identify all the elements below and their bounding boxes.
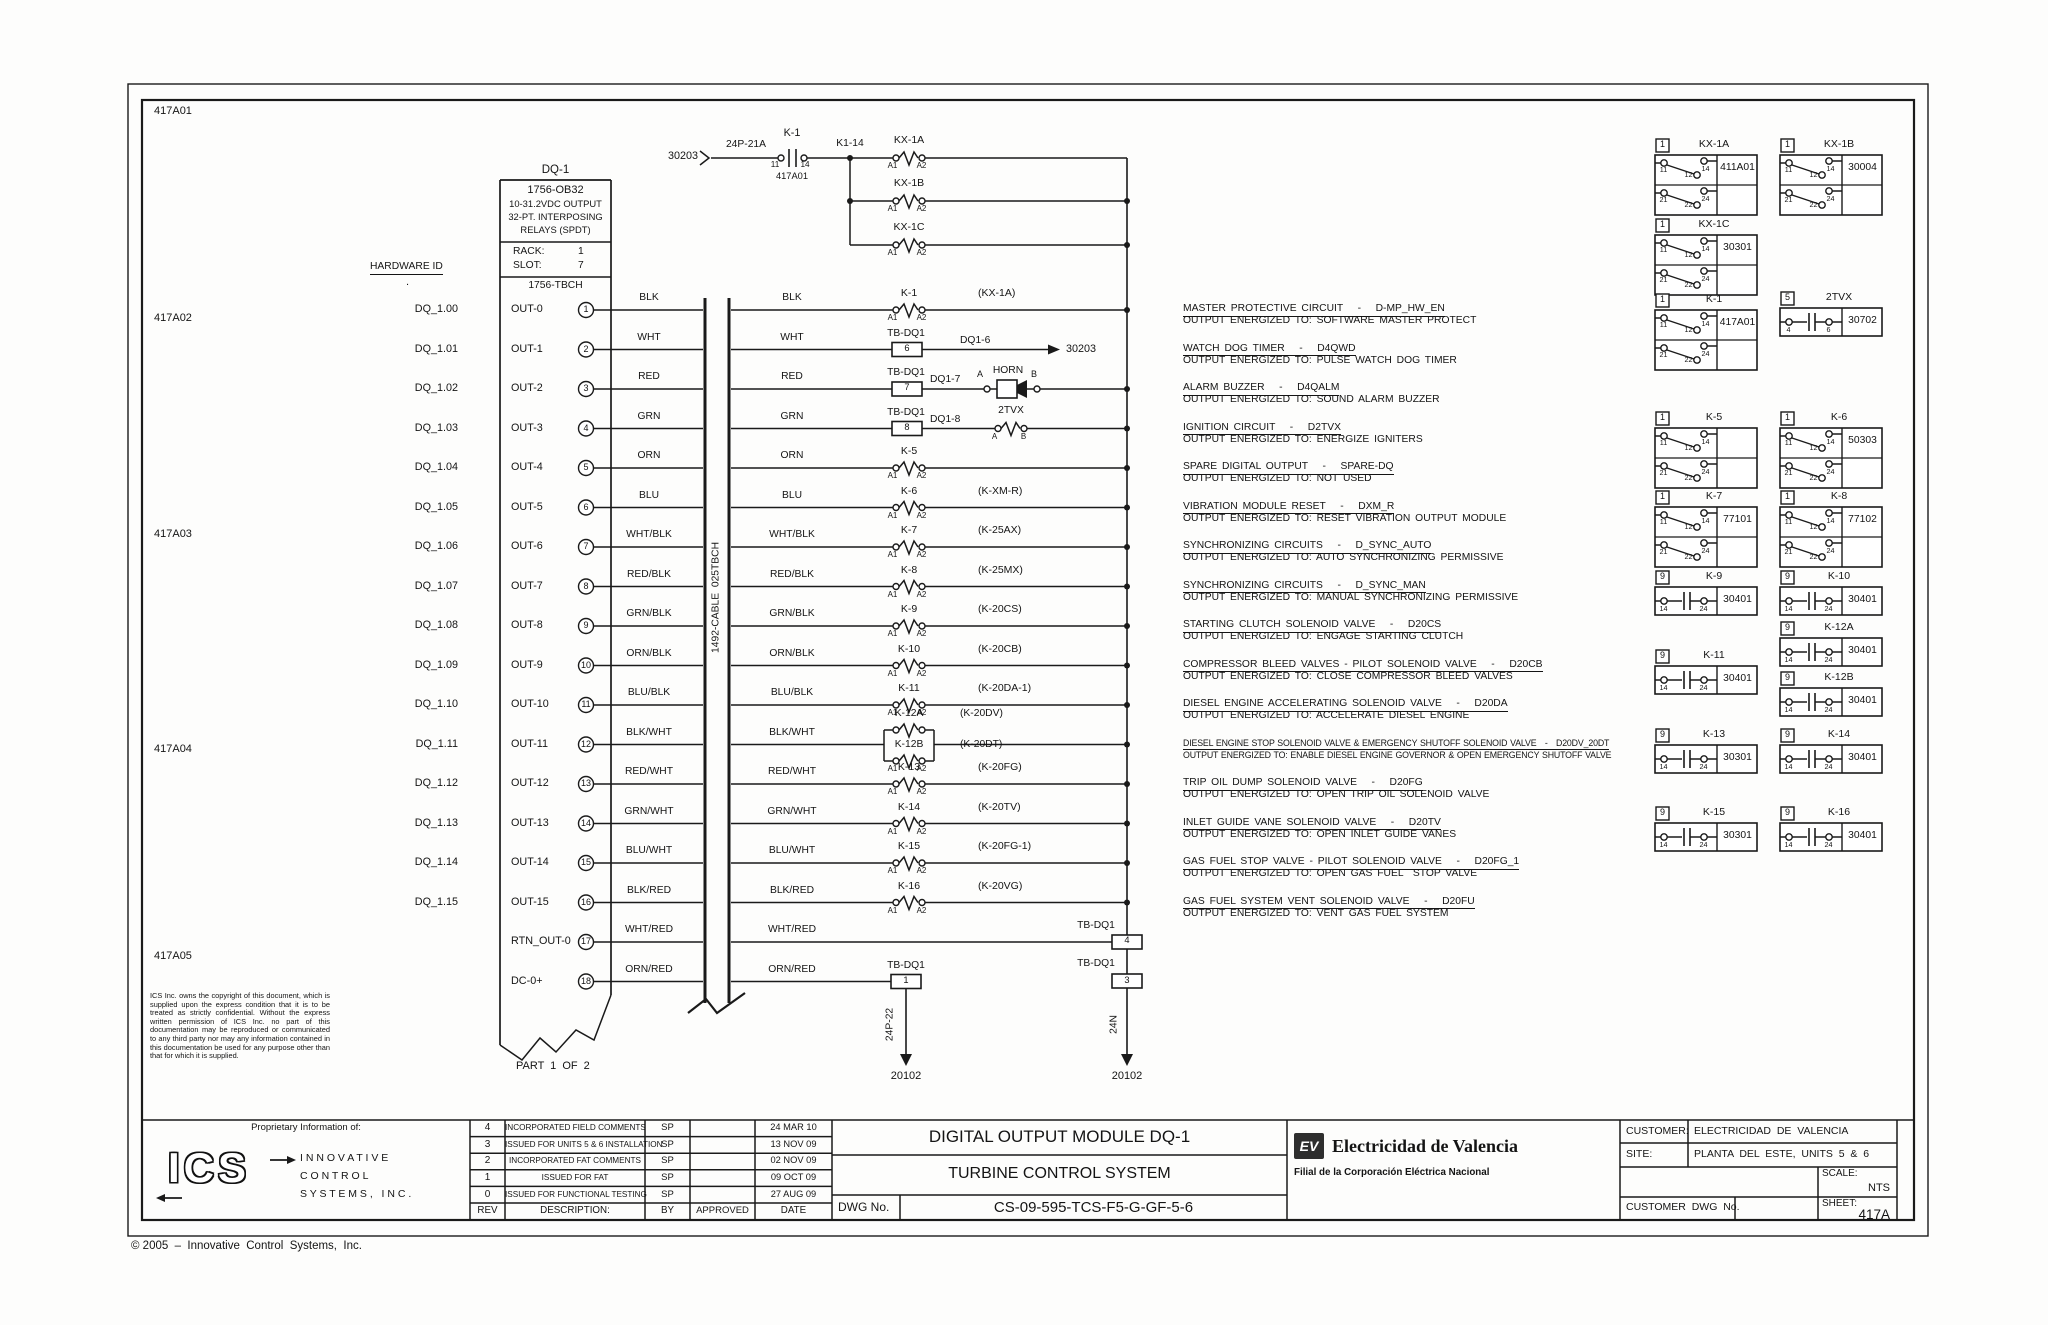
wire-color-label: ORN/BLK — [596, 649, 702, 660]
feed-contact-pin: 14 — [796, 161, 814, 170]
rev-description: INCORPORATED FIELD COMMENTS — [505, 1124, 645, 1133]
rev-number: 0 — [470, 1190, 505, 1201]
relay-block-name: K-10 — [1796, 571, 1882, 582]
relay-block-name: K-1 — [1671, 294, 1757, 305]
wire-color-label: ORN/BLK — [733, 649, 851, 660]
contact-pin: 14 — [1656, 684, 1671, 692]
relay-coil-name: K-7 — [874, 525, 944, 536]
contact-pin: 24 — [1821, 841, 1836, 849]
contact-pin: 12 — [1681, 444, 1696, 452]
coil-pin: A1 — [884, 670, 901, 678]
relay-block-ref: 30401 — [1843, 595, 1882, 606]
wire-color-label: ORN/RED — [733, 965, 851, 976]
relay-coil-name: K-12B — [874, 740, 944, 751]
zone-label: 417A05 — [154, 951, 192, 963]
coil-pin: A2 — [913, 249, 930, 257]
rack-label: RACK: — [513, 247, 544, 258]
contact-pin: 14 — [1698, 245, 1713, 253]
relay-block-ref: 30004 — [1843, 163, 1882, 174]
relay-coil-alias: (K-XM-R) — [978, 486, 1022, 497]
description-detail: OUTPUT ENERGIZED TO: RESET VIBRATION OUT… — [1183, 514, 1506, 525]
relay-block-ref: 30702 — [1843, 316, 1882, 327]
ev-company-name: Electricidad de Valencia — [1332, 1137, 1518, 1156]
contact-pin: 11 — [1656, 321, 1671, 329]
coil-pin: A2 — [913, 162, 930, 170]
relay-coil-alias: (K-20CB) — [978, 644, 1022, 655]
wire-color-label: GRN/WHT — [596, 807, 702, 818]
coil-pin: A1 — [884, 828, 901, 836]
module-out-label: RTN_OUT-0 — [511, 936, 571, 947]
relay-block-name: K-6 — [1796, 412, 1882, 423]
sheet-value: 417A — [1818, 1208, 1890, 1222]
module-model: 1756-OB32 — [500, 185, 611, 197]
rev-by: SP — [645, 1173, 690, 1183]
contact-pin: 24 — [1823, 547, 1838, 555]
tb-label: TB-DQ1 — [866, 961, 946, 972]
module-spec: 10-31.2VDC OUTPUT — [500, 199, 611, 209]
wire-color-label: BLU/WHT — [596, 846, 702, 857]
module-out-label: OUT-8 — [511, 620, 543, 631]
feed-contact-name: K-1 — [763, 128, 821, 139]
module-terminal-number: 18 — [578, 977, 594, 987]
module-terminal-number: 10 — [578, 661, 594, 671]
module-out-label: OUT-14 — [511, 857, 549, 868]
wire-color-label: BLU/BLK — [733, 688, 851, 699]
module-terminal-number: 11 — [578, 700, 594, 710]
rev-description: ISSUED FOR FUNCTIONAL TESTING — [505, 1191, 645, 1200]
hardware-id: DQ_1.01 — [370, 344, 458, 355]
wire-color-label: GRN — [596, 412, 702, 423]
feed-junction-label: K1-14 — [822, 139, 878, 150]
wire-tag: DQ1-6 — [960, 336, 990, 347]
contact-pin: 12 — [1681, 251, 1696, 259]
relay-block-badge: 9 — [1781, 623, 1794, 633]
coil-pin: A1 — [884, 472, 901, 480]
description-detail: OUTPUT ENERGIZED TO: OPEN INLET GUIDE VA… — [1183, 830, 1456, 841]
company-name-line: S Y S T E M S , I N C . — [300, 1189, 411, 1200]
relay-coil-name: K-16 — [874, 881, 944, 892]
contact-pin: 11 — [1656, 518, 1671, 526]
rev-date: 13 NOV 09 — [755, 1140, 832, 1150]
tb-terminal-number: 6 — [892, 344, 922, 354]
hardware-id: DQ_1.05 — [370, 502, 458, 513]
customer-value: ELECTRICIDAD DE VALENCIA — [1694, 1126, 1848, 1137]
coil-pin: A2 — [913, 472, 930, 480]
rev-date: 02 NOV 09 — [755, 1156, 832, 1166]
contact-pin: 24 — [1821, 763, 1836, 771]
relay-block-name: KX-1C — [1671, 219, 1757, 230]
hardware-id: DQ_1.12 — [370, 778, 458, 789]
contact-pin: 22 — [1681, 553, 1696, 561]
wire-color-label: RED — [733, 372, 851, 383]
copyright: © 2005 – Innovative Control Systems, Inc… — [131, 1240, 362, 1252]
wire-destination: 30203 — [1066, 344, 1096, 355]
module-terminal-number: 7 — [578, 542, 594, 552]
relay-coil-name: K-12A — [874, 709, 944, 720]
relay-block-name: K-11 — [1671, 650, 1757, 661]
company-name-line: C O N T R O L — [300, 1171, 368, 1182]
dwg-no-label: DWG No. — [838, 1201, 889, 1214]
drop-destination: 20102 — [874, 1071, 938, 1083]
contact-pin: 12 — [1806, 444, 1821, 452]
module-terminal-number: 1 — [578, 305, 594, 315]
description-detail: OUTPUT ENERGIZED TO: AUTO SYNCHRONIZING … — [1183, 553, 1503, 564]
relay-block-ref: 30401 — [1718, 674, 1757, 685]
tb-terminal-number: 4 — [1112, 936, 1142, 946]
contact-pin: 22 — [1681, 201, 1696, 209]
relay-coil-name: K-9 — [874, 604, 944, 615]
wire-color-label: ORN — [596, 451, 702, 462]
relay-coil-alias: (K-20VG) — [978, 881, 1022, 892]
relay-coil-alias: (K-20FG) — [978, 762, 1022, 773]
rev-number: 2 — [470, 1156, 505, 1167]
proprietary-heading: Proprietary Information of: — [142, 1123, 470, 1133]
rev-by: SP — [645, 1156, 690, 1166]
wire-color-label: BLK — [596, 293, 702, 304]
rev-header-date: DATE — [755, 1206, 832, 1216]
contact-pin: 22 — [1681, 474, 1696, 482]
dwg-no-value: CS-09-595-TCS-F5-G-GF-5-6 — [900, 1200, 1287, 1216]
hardware-id: DQ_1.02 — [370, 383, 458, 394]
relay-block-ref: 30401 — [1718, 595, 1757, 606]
coil-pin: A2 — [913, 314, 930, 322]
customer-label: CUSTOMER: — [1626, 1126, 1689, 1137]
coil-pin: A2 — [913, 670, 930, 678]
coil-pin: A1 — [884, 249, 901, 257]
contact-pin: 24 — [1698, 195, 1713, 203]
relay-block-ref: 30401 — [1843, 696, 1882, 707]
relay-block-name: KX-1B — [1796, 139, 1882, 150]
contact-pin: 24 — [1823, 468, 1838, 476]
contact-pin: 14 — [1823, 517, 1838, 525]
relay-block-badge: 9 — [1656, 572, 1669, 582]
zone-label: 417A01 — [154, 106, 192, 118]
coil-pin: A2 — [913, 828, 930, 836]
relay-block-badge: 9 — [1656, 730, 1669, 740]
contact-pin: 11 — [1656, 439, 1671, 447]
relay-block-badge: 1 — [1781, 413, 1794, 423]
module-terminal-number: 2 — [578, 345, 594, 355]
wire-color-label: WHT — [733, 333, 851, 344]
coil-pin: A2 — [913, 551, 930, 559]
hardware-id-dot: . — [406, 277, 409, 289]
module-out-label: OUT-5 — [511, 502, 543, 513]
relay-block-name: K-14 — [1796, 729, 1882, 740]
wire-color-label: WHT/RED — [596, 925, 702, 936]
description-detail: OUTPUT ENERGIZED TO: ACCELERATE DIESEL E… — [1183, 711, 1469, 722]
wire-color-label: RED/BLK — [733, 570, 851, 581]
wire-color-label: GRN — [733, 412, 851, 423]
relay-block-name: K-7 — [1671, 491, 1757, 502]
feed-contact-pin: 11 — [766, 161, 784, 170]
coil-pin: A1 — [884, 630, 901, 638]
relay-coil-alias: (K-20FG-1) — [978, 841, 1031, 852]
contact-pin: 11 — [1781, 439, 1796, 447]
coil-pin: A2 — [913, 630, 930, 638]
wire-tag: DQ1-7 — [930, 375, 960, 386]
contact-pin: 24 — [1698, 350, 1713, 358]
contact-pin: 14 — [1781, 605, 1796, 613]
contact-pin: 21 — [1781, 196, 1796, 204]
wire-color-label: BLU/BLK — [596, 688, 702, 699]
relay-block-badge: 1 — [1781, 140, 1794, 150]
coil-pin: A2 — [913, 591, 930, 599]
coil-pin: A1 — [884, 788, 901, 796]
hardware-id: DQ_1.14 — [370, 857, 458, 868]
contact-pin: 24 — [1696, 841, 1711, 849]
module-terminal-number: 9 — [578, 621, 594, 631]
contact-pin: 12 — [1681, 523, 1696, 531]
hardware-id: DQ_1.00 — [370, 304, 458, 315]
drop-wire-tag: 24N — [1110, 1001, 1121, 1047]
hardware-id: DQ_1.04 — [370, 462, 458, 473]
module-out-label: OUT-15 — [511, 897, 549, 908]
drop-wire-tag: 24P-22 — [886, 992, 897, 1056]
contact-pin: 14 — [1698, 517, 1713, 525]
feed-sheet-ref: 417A01 — [763, 172, 821, 182]
hardware-id: DQ_1.07 — [370, 581, 458, 592]
relay-coil-alias: (KX-1A) — [978, 288, 1015, 299]
module-terminal-number: 6 — [578, 503, 594, 513]
relay-coil-name: K-10 — [874, 644, 944, 655]
module-out-label: OUT-11 — [511, 739, 548, 750]
contact-pin: 22 — [1806, 201, 1821, 209]
contact-pin: 24 — [1821, 605, 1836, 613]
module-out-label: OUT-13 — [511, 818, 549, 829]
hardware-id: DQ_1.10 — [370, 699, 458, 710]
relay-block-badge: 5 — [1781, 293, 1794, 303]
customer-dwg-label: CUSTOMER DWG No. — [1626, 1202, 1740, 1213]
wire-color-label: ORN/RED — [596, 965, 702, 976]
contact-pin: 21 — [1656, 196, 1671, 204]
ics-logo: ICS — [168, 1146, 250, 1191]
contact-pin: 22 — [1806, 474, 1821, 482]
contact-pin: 12 — [1681, 171, 1696, 179]
module-terminal-number: 12 — [578, 740, 594, 750]
description-detail: OUTPUT ENERGIZED TO: SOFTWARE MASTER PRO… — [1183, 316, 1476, 327]
relay-coil-name: K-5 — [874, 446, 944, 457]
ev-logo: EV — [1294, 1133, 1324, 1159]
module-out-label: DC-0+ — [511, 976, 543, 987]
wire-color-label: BLU — [596, 491, 702, 502]
relay-block-badge: 1 — [1656, 413, 1669, 423]
hardware-id: DQ_1.08 — [370, 620, 458, 631]
tb-terminal-number: 8 — [892, 423, 922, 433]
coil-pin: A2 — [913, 205, 930, 213]
relay-coil-name: 2TVX — [976, 406, 1046, 417]
relay-block-name: K-5 — [1671, 412, 1757, 423]
coil-pin: A1 — [884, 512, 901, 520]
site-label: SITE: — [1626, 1149, 1652, 1160]
ev-company-sub: Filial de la Corporación Eléctrica Nacio… — [1294, 1168, 1489, 1178]
rev-number: 3 — [470, 1140, 505, 1151]
wire-color-label: WHT/BLK — [596, 530, 702, 541]
description-detail: OUTPUT ENERGIZED TO: ENGAGE STARTING CLU… — [1183, 632, 1463, 643]
relay-block-badge: 9 — [1781, 808, 1794, 818]
relay-block-ref: 30401 — [1843, 831, 1882, 842]
contact-pin: 22 — [1681, 281, 1696, 289]
module-terminal-number: 4 — [578, 424, 594, 434]
contact-pin: 14 — [1656, 605, 1671, 613]
description-title: DIESEL ENGINE STOP SOLENOID VALVE & EMER… — [1183, 739, 1609, 750]
rev-number: 4 — [470, 1123, 505, 1134]
contact-pin: 21 — [1656, 548, 1671, 556]
module-terminal-number: 17 — [578, 937, 594, 947]
contact-pin: 11 — [1781, 518, 1796, 526]
description-detail: OUTPUT ENERGIZED TO: ENERGIZE IGNITERS — [1183, 435, 1423, 446]
feed-source-tag: 30203 — [640, 151, 698, 162]
relay-block-ref: 30301 — [1718, 753, 1757, 764]
coil-pin: A2 — [913, 867, 930, 875]
contact-pin: 6 — [1821, 326, 1836, 334]
relay-block-ref: 30401 — [1843, 753, 1882, 764]
relay-block-badge: 9 — [1656, 651, 1669, 661]
coil-pin: A1 — [884, 907, 901, 915]
contact-pin: 24 — [1698, 547, 1713, 555]
relay-coil-name: K-15 — [874, 841, 944, 852]
contact-pin: 24 — [1696, 763, 1711, 771]
contact-pin: 14 — [1781, 763, 1796, 771]
description-detail: OUTPUT ENERGIZED TO: CLOSE COMPRESSOR BL… — [1183, 672, 1513, 683]
relay-coil-name: K-11 — [874, 683, 944, 694]
module-terminal-number: 13 — [578, 779, 594, 789]
contact-pin: 14 — [1698, 320, 1713, 328]
relay-coil-alias: (K-20TV) — [978, 802, 1021, 813]
rev-header-by: BY — [645, 1206, 690, 1216]
hardware-id: DQ_1.13 — [370, 818, 458, 829]
wire-color-label: GRN/BLK — [596, 609, 702, 620]
contact-pin: 14 — [1698, 438, 1713, 446]
module-spec: RELAYS (SPDT) — [500, 225, 611, 235]
coil-pin: B — [1015, 433, 1032, 441]
wire-color-label: RED — [596, 372, 702, 383]
module-name: DQ-1 — [500, 164, 611, 176]
rev-by: SP — [645, 1190, 690, 1200]
relay-block-badge: 1 — [1656, 140, 1669, 150]
zone-label: 417A04 — [154, 744, 192, 756]
hardware-id-header: HARDWARE ID — [370, 262, 443, 275]
hardware-id: DQ_1.09 — [370, 660, 458, 671]
feed-wire-label: 24P-21A — [702, 140, 790, 151]
horn-pin: B — [1026, 370, 1042, 380]
relay-block-ref: 417A01 — [1718, 318, 1757, 329]
description-detail: OUTPUT ENERGIZED TO: OPEN GAS FUEL STOP … — [1183, 869, 1477, 880]
relay-block-badge: 1 — [1656, 220, 1669, 230]
module-out-label: OUT-1 — [511, 344, 543, 355]
wire-color-label: WHT/BLK — [733, 530, 851, 541]
contact-pin: 24 — [1696, 605, 1711, 613]
contact-pin: 14 — [1656, 763, 1671, 771]
description-detail: OUTPUT ENERGIZED TO: ENABLE DIESEL ENGIN… — [1183, 751, 1611, 760]
contact-pin: 14 — [1823, 438, 1838, 446]
module-out-label: OUT-12 — [511, 778, 549, 789]
terminal-base-label: 1756-TBCH — [500, 281, 611, 292]
contact-pin: 21 — [1781, 548, 1796, 556]
relay-block-name: K-9 — [1671, 571, 1757, 582]
description-detail: OUTPUT ENERGIZED TO: PULSE WATCH DOG TIM… — [1183, 356, 1457, 367]
wire-color-label: GRN/BLK — [733, 609, 851, 620]
contact-pin: 14 — [1823, 165, 1838, 173]
zone-label: 417A03 — [154, 529, 192, 541]
coil-pin: A2 — [913, 907, 930, 915]
relay-block-badge: 9 — [1656, 808, 1669, 818]
relay-coil-alias: (K-25MX) — [978, 565, 1023, 576]
relay-coil-alias: (K-25AX) — [978, 525, 1021, 536]
relay-block-badge: 1 — [1656, 295, 1669, 305]
relay-block-ref: 411A01 — [1718, 163, 1757, 174]
contact-pin: 11 — [1656, 166, 1671, 174]
tb-terminal-number: 1 — [891, 976, 921, 986]
relay-coil-name: K-1 — [874, 288, 944, 299]
relay-block-badge: 9 — [1781, 730, 1794, 740]
tb-terminal-number: 7 — [892, 383, 922, 393]
rev-number: 1 — [470, 1173, 505, 1184]
wire-color-label: BLK/RED — [596, 886, 702, 897]
relay-block-ref: 77102 — [1843, 515, 1882, 526]
rev-description: ISSUED FOR FAT — [505, 1174, 645, 1183]
relay-block-name: K-16 — [1796, 807, 1882, 818]
contact-pin: 24 — [1823, 195, 1838, 203]
rev-date: 27 AUG 09 — [755, 1190, 832, 1200]
drawing-subtitle: TURBINE CONTROL SYSTEM — [832, 1166, 1287, 1183]
description-detail: OUTPUT ENERGIZED TO: SOUND ALARM BUZZER — [1183, 395, 1440, 406]
wire-color-label: BLK/RED — [733, 886, 851, 897]
relay-coil-name: K-13 — [874, 762, 944, 773]
relay-block-name: K-15 — [1671, 807, 1757, 818]
description-detail: OUTPUT ENERGIZED TO: VENT GAS FUEL SYSTE… — [1183, 909, 1448, 920]
rev-header-approved: APPROVED — [690, 1206, 755, 1216]
slot-value: 7 — [578, 261, 584, 272]
hardware-id: DQ_1.11 — [370, 739, 458, 750]
coil-pin: A1 — [884, 591, 901, 599]
wire-color-label: BLU — [733, 491, 851, 502]
rev-date: 24 MAR 10 — [755, 1123, 832, 1133]
drawing-title: DIGITAL OUTPUT MODULE DQ-1 — [832, 1128, 1287, 1146]
coil-pin: A1 — [884, 205, 901, 213]
relay-coil-name: KX-1A — [874, 135, 944, 146]
coil-pin: A1 — [884, 867, 901, 875]
wire-color-label: BLK — [733, 293, 851, 304]
contact-pin: 21 — [1656, 276, 1671, 284]
relay-block-badge: 9 — [1781, 673, 1794, 683]
module-out-label: OUT-6 — [511, 541, 543, 552]
coil-pin: A1 — [884, 314, 901, 322]
tb-label: TB-DQ1 — [866, 329, 946, 340]
tb-label: TB-DQ1 — [1056, 921, 1136, 932]
relay-coil-name: K-8 — [874, 565, 944, 576]
description-detail: OUTPUT ENERGIZED TO: MANUAL SYNCHRONIZIN… — [1183, 593, 1518, 604]
hardware-id: DQ_1.03 — [370, 423, 458, 434]
contact-pin: 22 — [1806, 553, 1821, 561]
slot-label: SLOT: — [513, 261, 542, 272]
horn-icon: HORN — [984, 366, 1032, 377]
coil-pin: A — [986, 433, 1003, 441]
part-note: PART 1 OF 2 — [516, 1061, 590, 1073]
wire-color-label: WHT/RED — [733, 925, 851, 936]
contact-pin: 14 — [1656, 841, 1671, 849]
wire-color-label: BLK/WHT — [596, 728, 702, 739]
drop-destination: 20102 — [1095, 1071, 1159, 1083]
contact-pin: 14 — [1698, 165, 1713, 173]
contact-pin: 14 — [1781, 706, 1796, 714]
company-name-line: I N N O V A T I V E — [300, 1153, 388, 1164]
module-out-label: OUT-10 — [511, 699, 549, 710]
relay-block-name: K-12B — [1796, 672, 1882, 683]
wire-color-label: RED/WHT — [733, 767, 851, 778]
rev-description: INCORPORATED FAT COMMENTS — [505, 1157, 645, 1166]
site-value: PLANTA DEL ESTE, UNITS 5 & 6 — [1694, 1149, 1869, 1160]
relay-coil-name: KX-1B — [874, 178, 944, 189]
